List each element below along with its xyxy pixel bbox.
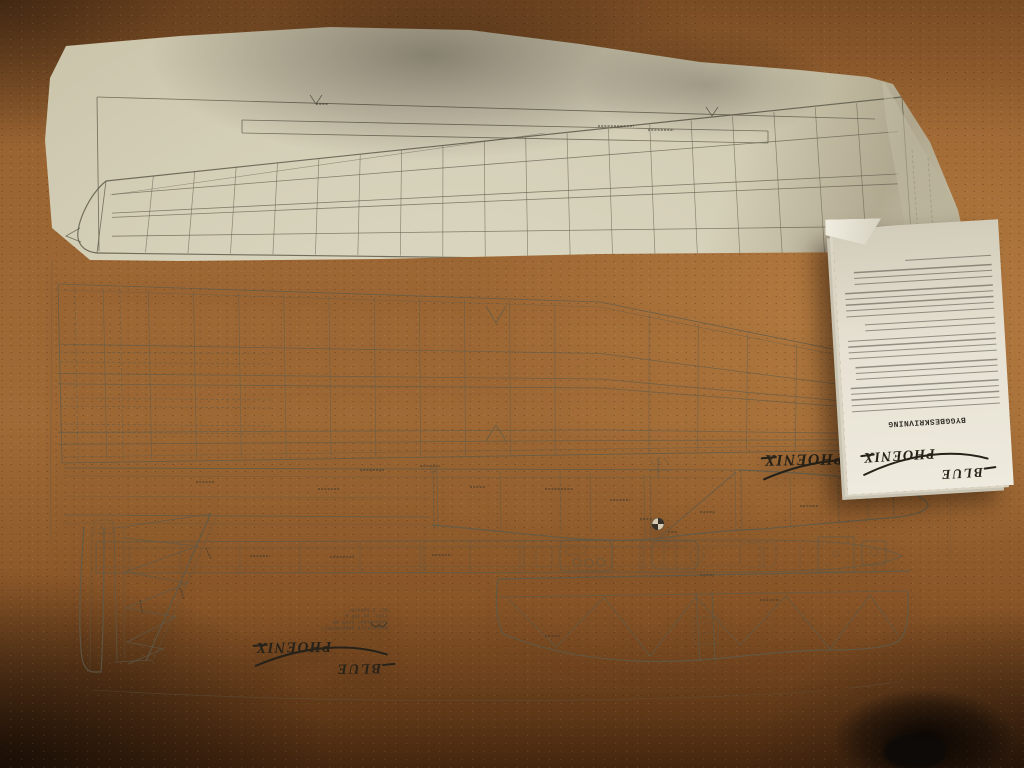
booklet-page: BLUE PHOENIX BYGGBESKRIVNING (832, 219, 1013, 494)
booklet-heading: BYGGBESKRIVNING (888, 415, 966, 429)
fin-rudder-plan (80, 513, 217, 672)
booklet-paragraph (850, 376, 999, 413)
booklet-paragraph (848, 328, 997, 360)
blue-phoenix-logo: BLUE PHOENIX (861, 440, 998, 486)
camera-shadow-2 (540, 10, 870, 160)
logo-word-blue: BLUE (939, 463, 983, 481)
logo-word-phoenix: PHOENIX (764, 449, 844, 468)
spec-block: Radiostyrd segelmodell Spännvidd: 2540 m… (248, 605, 388, 631)
booklet-paragraph (845, 281, 994, 318)
cg-symbol-icon (652, 518, 664, 530)
phoenix-bird-icon (370, 619, 388, 629)
center-wing-panel-plan (58, 284, 946, 463)
blue-phoenix-logo: BLUE PHOENIX (254, 635, 397, 677)
logo-word-blue: BLUE (336, 659, 382, 676)
stabilizer-plan (496, 571, 910, 661)
instruction-booklet: BLUE PHOENIX BYGGBESKRIVNING (832, 219, 1013, 494)
dark-object (884, 735, 946, 768)
plan-title-block: BLUE PHOENIX Radiostyrd segelmodell Spän… (247, 587, 436, 678)
logo-word-phoenix: PHOENIX (255, 637, 331, 655)
booklet-paragraph (905, 250, 991, 261)
fuselage-top-view (96, 537, 902, 573)
booklet-body-text (843, 246, 1000, 412)
photo-scene: BLUE PHOENIX Radiostyrd segelmodell Spän… (0, 0, 1024, 768)
